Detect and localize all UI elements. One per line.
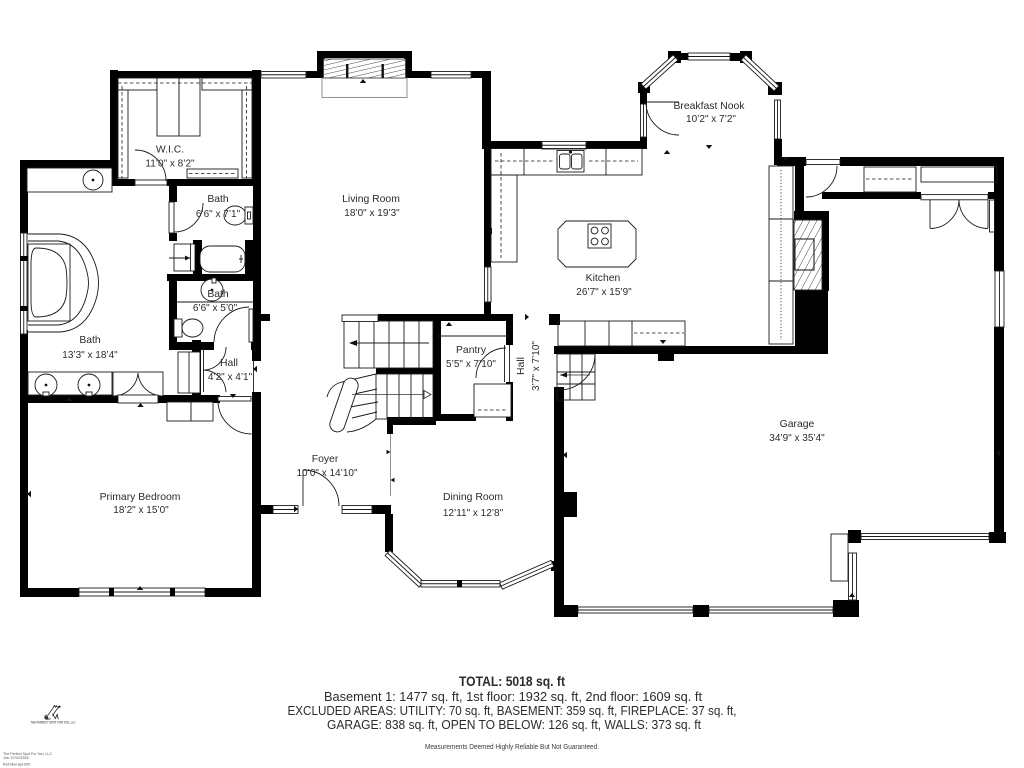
svg-text:Bath: Bath bbox=[79, 335, 101, 346]
svg-text:18’2" x 15’0": 18’2" x 15’0" bbox=[113, 505, 169, 516]
svg-text:Hall: Hall bbox=[220, 358, 238, 369]
svg-text:26’7" x 15’9": 26’7" x 15’9" bbox=[576, 287, 632, 298]
svg-text:Garage: Garage bbox=[780, 419, 815, 430]
svg-text:6’6" x 7’1": 6’6" x 7’1" bbox=[196, 209, 241, 220]
svg-text:Foyer: Foyer bbox=[312, 454, 339, 465]
svg-text:Bath: Bath bbox=[207, 289, 229, 300]
svg-text:GARAGE: 838 sq. ft, OPEN TO BE: GARAGE: 838 sq. ft, OPEN TO BELOW: 126 s… bbox=[327, 717, 701, 732]
svg-text:Measurements Deemed Highly Rel: Measurements Deemed Highly Reliable But … bbox=[425, 744, 599, 751]
svg-text:10’0" x 14’10": 10’0" x 14’10" bbox=[296, 468, 357, 479]
svg-text:Job: 07/02/2025: Job: 07/02/2025 bbox=[3, 756, 29, 760]
svg-text:W.I.C.: W.I.C. bbox=[156, 145, 184, 156]
svg-text:13’3" x 18’4": 13’3" x 18’4" bbox=[62, 350, 118, 361]
svg-text:TOTAL: 5018 sq. ft: TOTAL: 5018 sq. ft bbox=[459, 674, 565, 689]
svg-text:5’5" x 7’10": 5’5" x 7’10" bbox=[446, 359, 496, 370]
svg-text:12’11" x 12’8": 12’11" x 12’8" bbox=[443, 508, 504, 519]
svg-text:Breakfast Nook: Breakfast Nook bbox=[673, 101, 745, 112]
svg-text:Kitchen: Kitchen bbox=[586, 273, 621, 284]
svg-text:10’2" x 7’2": 10’2" x 7’2" bbox=[686, 114, 736, 125]
svg-text:Basement 1: 1477 sq. ft, 1st f: Basement 1: 1477 sq. ft, 1st floor: 1932… bbox=[324, 689, 702, 704]
svg-text:Dining Room: Dining Room bbox=[443, 492, 503, 503]
svg-text:18’0" x 19’3": 18’0" x 19’3" bbox=[344, 208, 400, 219]
svg-text:3’7" x 7’10": 3’7" x 7’10" bbox=[531, 341, 542, 391]
svg-text:THE PERFECT SPOT FOR YOU, LLC: THE PERFECT SPOT FOR YOU, LLC bbox=[31, 721, 77, 725]
svg-text:11’0" x 8’2": 11’0" x 8’2" bbox=[145, 159, 195, 170]
svg-text:Bath: Bath bbox=[207, 194, 229, 205]
svg-text:4’2" x 4’1": 4’2" x 4’1" bbox=[208, 372, 253, 383]
svg-text:Living Room: Living Room bbox=[342, 194, 400, 205]
svg-text:Pantry: Pantry bbox=[456, 345, 487, 356]
svg-text:Hall: Hall bbox=[516, 357, 527, 375]
svg-text:34’9" x 35’4": 34’9" x 35’4" bbox=[769, 433, 825, 444]
svg-text:Ref:Murray1000: Ref:Murray1000 bbox=[3, 763, 30, 767]
svg-text:EXCLUDED AREAS: UTILITY: 70 sq: EXCLUDED AREAS: UTILITY: 70 sq. ft, BASE… bbox=[288, 703, 737, 718]
svg-text:Primary Bedroom: Primary Bedroom bbox=[100, 492, 181, 503]
svg-text:6’6" x 5’0": 6’6" x 5’0" bbox=[193, 303, 238, 314]
